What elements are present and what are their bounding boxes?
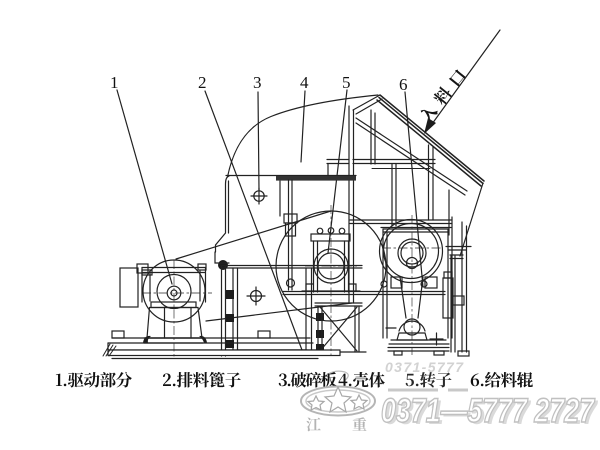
svg-text:0371—5777 2727: 0371—5777 2727 [381, 392, 596, 430]
svg-text:2: 2 [198, 73, 207, 92]
svg-text:5: 5 [342, 73, 351, 92]
svg-text:3: 3 [253, 73, 262, 92]
svg-text:6: 6 [399, 75, 408, 94]
svg-text:4: 4 [300, 73, 309, 92]
svg-text:1: 1 [110, 73, 119, 92]
